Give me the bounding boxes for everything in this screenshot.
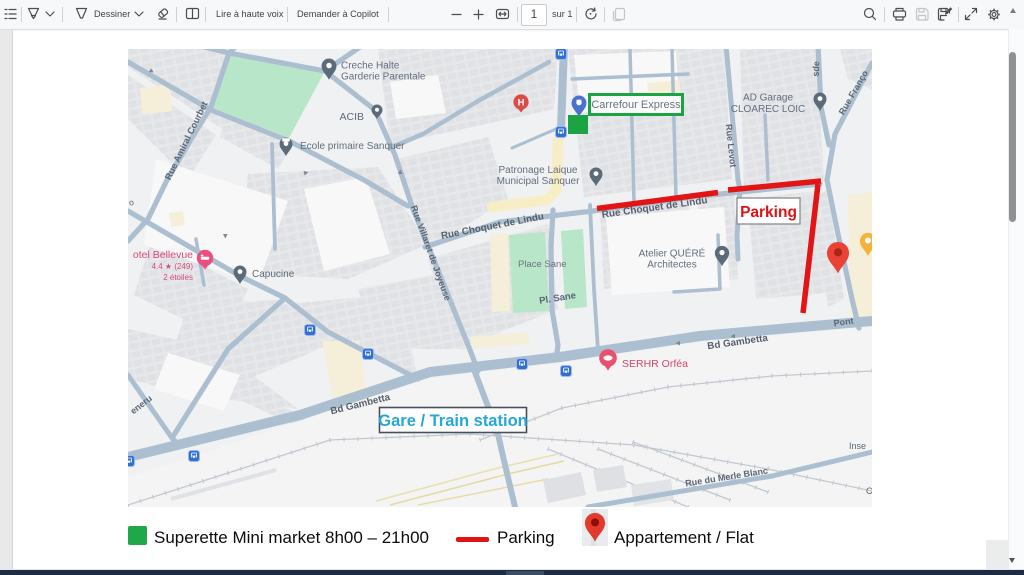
- svg-text:Parking: Parking: [740, 204, 797, 221]
- svg-text:Garderie Parentale: Garderie Parentale: [341, 72, 426, 83]
- svg-text:Patronage Laique: Patronage Laique: [499, 165, 578, 176]
- svg-text:2 étoiles: 2 étoiles: [163, 273, 193, 282]
- svg-text:H: H: [518, 97, 525, 108]
- svg-text:AD Garage: AD Garage: [743, 93, 793, 104]
- svg-text:C: C: [866, 486, 872, 496]
- svg-text:Gare / Train station: Gare / Train station: [378, 412, 527, 430]
- svg-text:Creche Halte: Creche Halte: [341, 61, 400, 72]
- svg-text:Ecole primaire Sanquer: Ecole primaire Sanquer: [300, 141, 405, 152]
- svg-text:4.4 ★ (249): 4.4 ★ (249): [152, 262, 194, 271]
- svg-text:CLOAREC LOIC: CLOAREC LOIC: [731, 104, 805, 115]
- svg-text:Capucine: Capucine: [252, 269, 295, 280]
- svg-text:Carrefour Express: Carrefour Express: [591, 99, 681, 111]
- svg-text:otel Bellevue: otel Bellevue: [133, 249, 193, 261]
- svg-text:sde: sde: [811, 61, 822, 77]
- svg-text:Place Sane: Place Sane: [518, 259, 567, 270]
- svg-text:Municipal Sanquer: Municipal Sanquer: [497, 176, 580, 187]
- svg-text:Atelier QUÉRÉ: Atelier QUÉRÉ: [639, 247, 706, 260]
- svg-text:ACIB: ACIB: [339, 111, 364, 123]
- svg-text:Inse: Inse: [849, 441, 866, 451]
- svg-text:SERHR Orféa: SERHR Orféa: [622, 358, 688, 370]
- svg-text:Architectes: Architectes: [647, 260, 696, 271]
